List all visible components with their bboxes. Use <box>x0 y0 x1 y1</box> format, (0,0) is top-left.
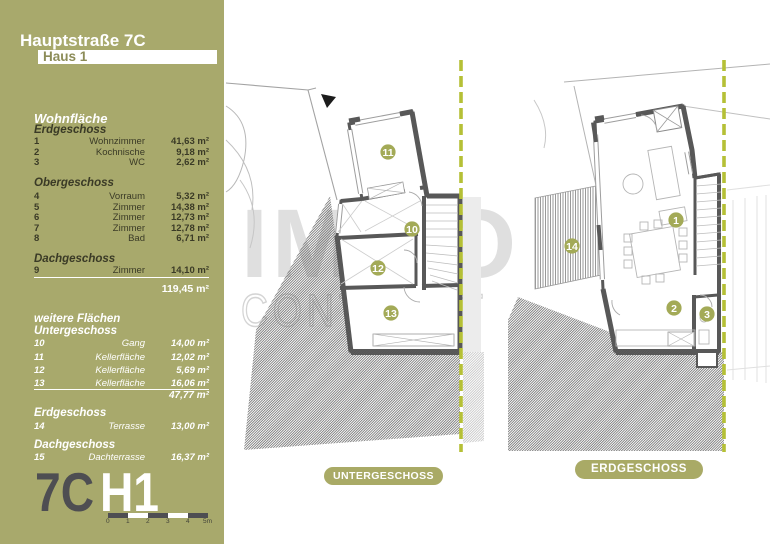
svg-text:14: 14 <box>566 241 578 253</box>
svg-text:13: 13 <box>385 308 397 320</box>
svg-text:12: 12 <box>372 263 384 275</box>
svg-text:2: 2 <box>671 303 677 315</box>
svg-text:1: 1 <box>673 215 679 227</box>
svg-text:3: 3 <box>704 309 710 321</box>
svg-text:10: 10 <box>406 224 418 236</box>
svg-text:11: 11 <box>382 147 393 159</box>
